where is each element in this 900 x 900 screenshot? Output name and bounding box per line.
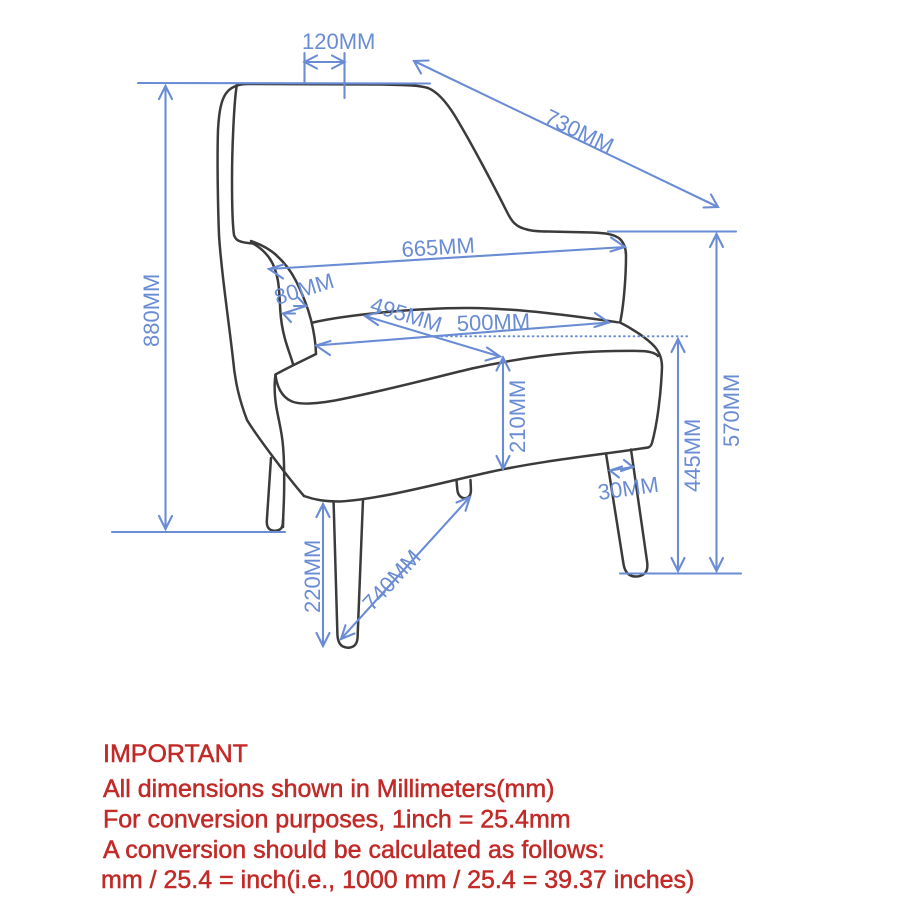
svg-text:570MM: 570MM [719,374,744,447]
svg-text:220MM: 220MM [300,540,325,613]
svg-text:mm / 25.4 = inch(i.e., 1000 mm: mm / 25.4 = inch(i.e., 1000 mm / 25.4 = … [101,866,694,894]
svg-text:All dimensions shown in Millim: All dimensions shown in Millimeters(mm) [103,775,555,803]
svg-text:445MM: 445MM [680,419,705,492]
svg-text:880MM: 880MM [139,274,164,347]
svg-text:665MM: 665MM [401,233,476,262]
svg-text:A conversion should be calcula: A conversion should be calculated as fol… [103,836,605,864]
svg-text:IMPORTANT: IMPORTANT [103,740,248,768]
svg-text:210MM: 210MM [505,380,530,453]
svg-text:500MM: 500MM [456,308,530,336]
svg-text:For conversion purposes, 1inch: For conversion purposes, 1inch = 25.4mm [103,806,571,834]
svg-text:120MM: 120MM [302,29,375,54]
